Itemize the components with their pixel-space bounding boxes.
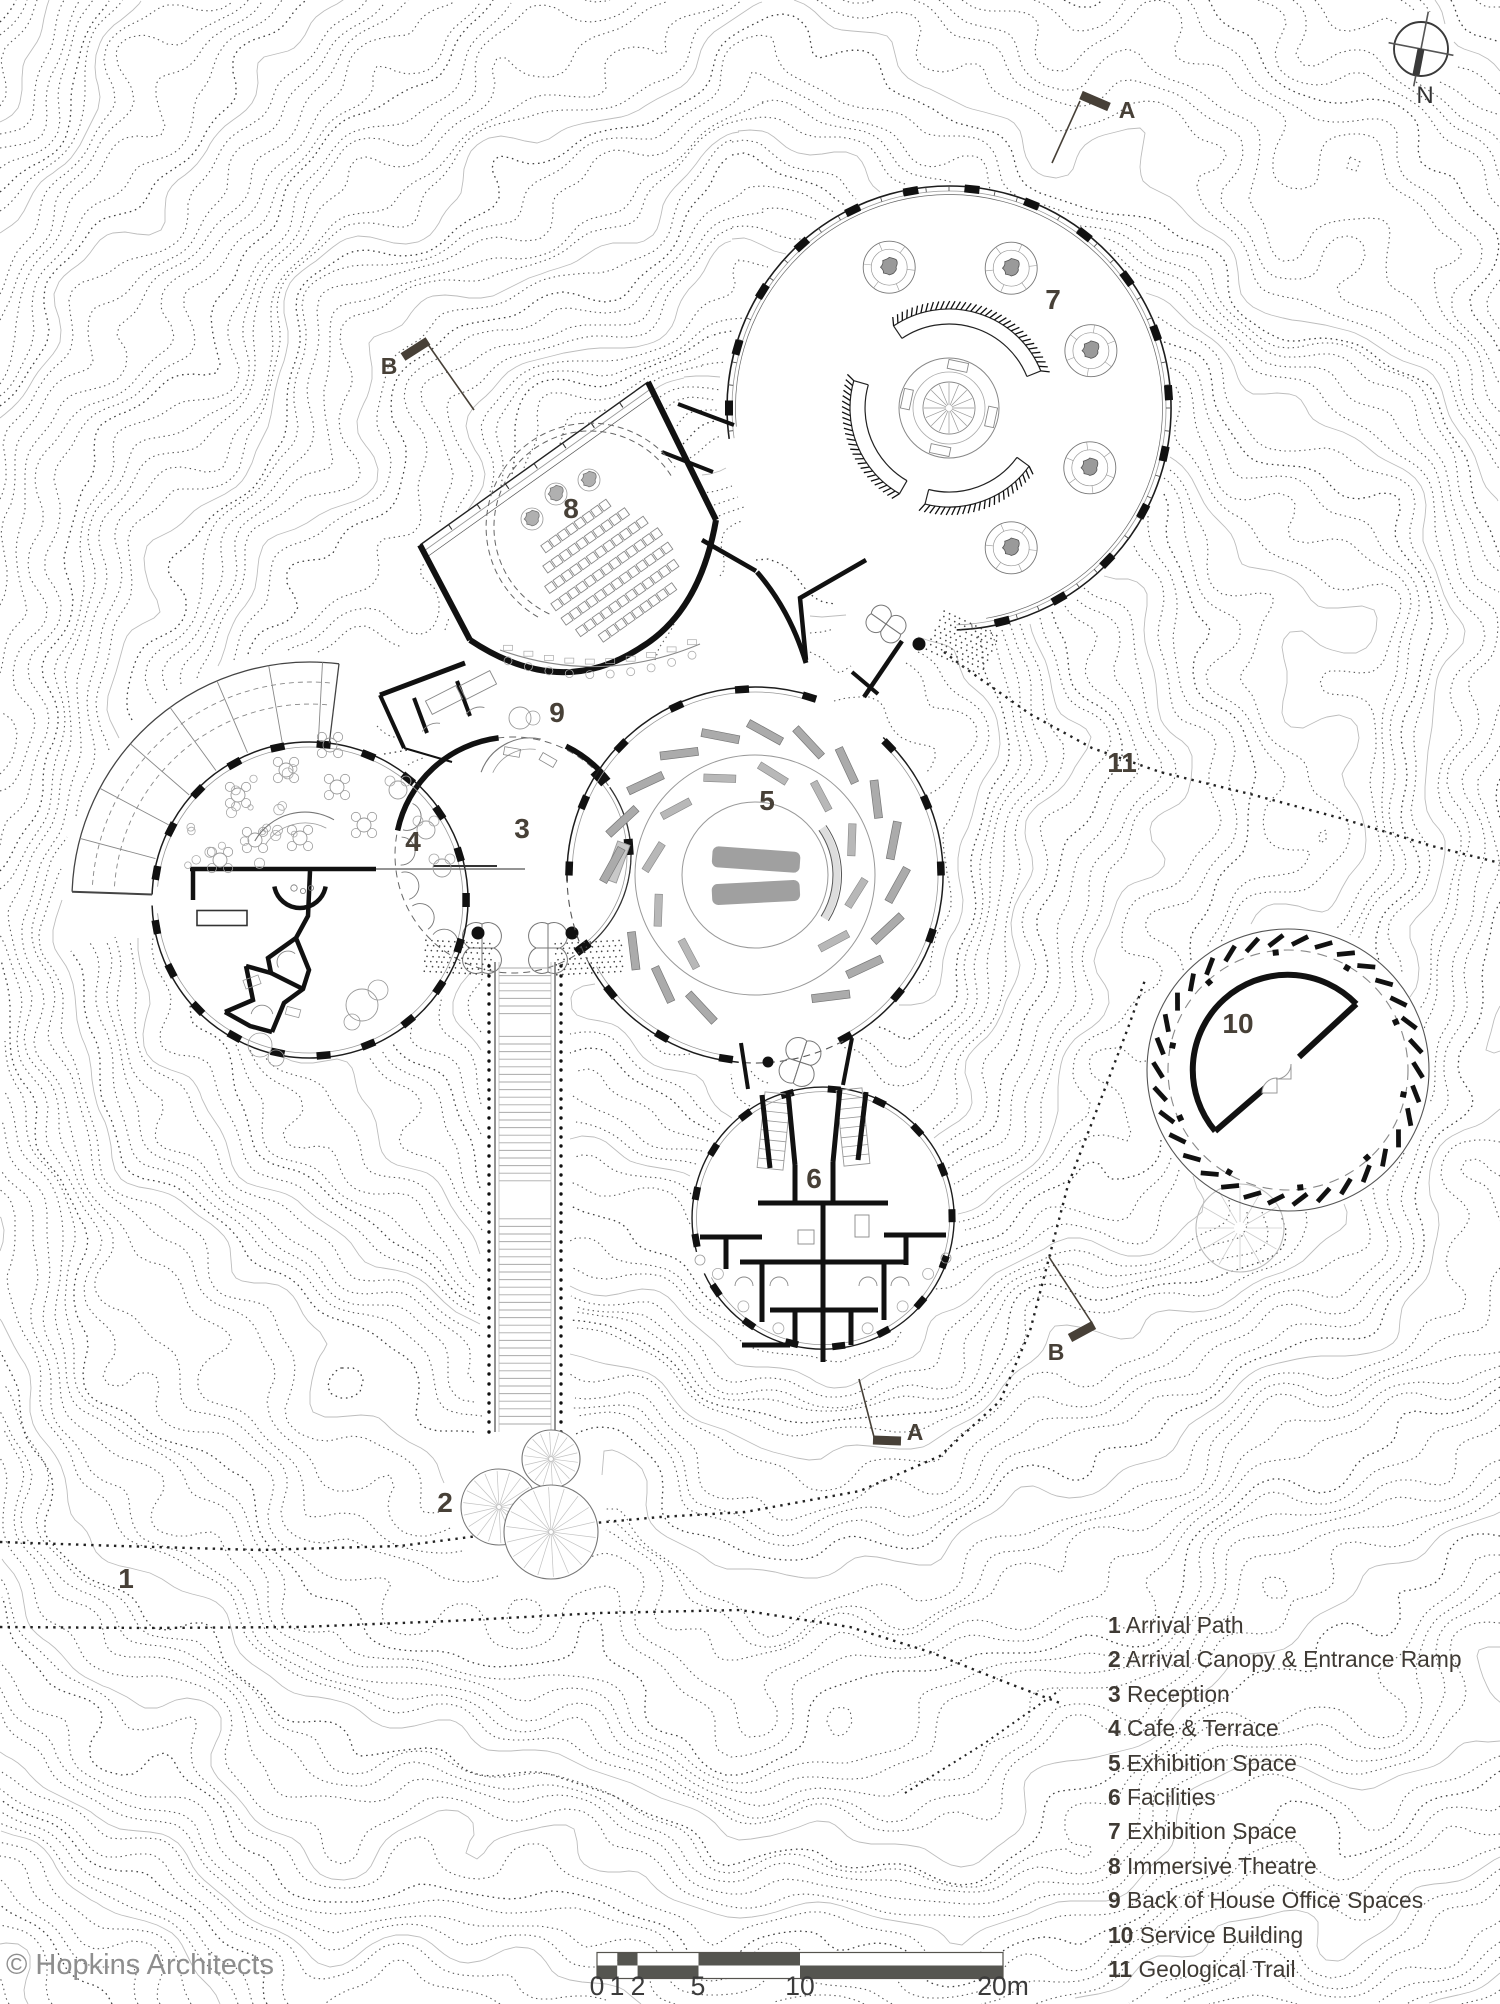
svg-text:N: N: [1416, 82, 1433, 109]
svg-text:10 Service Building: 10 Service Building: [1108, 1922, 1303, 1948]
svg-text:3 Reception: 3 Reception: [1108, 1681, 1230, 1707]
svg-text:2: 2: [437, 1487, 453, 1518]
svg-text:1 Arrival Path: 1 Arrival Path: [1108, 1612, 1244, 1638]
svg-text:B: B: [381, 353, 398, 379]
svg-text:11: 11: [1107, 747, 1137, 778]
svg-text:© Hopkins Architects: © Hopkins Architects: [6, 1949, 274, 1981]
svg-text:5 Exhibition Space: 5 Exhibition Space: [1108, 1750, 1297, 1776]
svg-text:7 Exhibition Space: 7 Exhibition Space: [1108, 1818, 1297, 1844]
svg-text:1: 1: [118, 1563, 134, 1594]
svg-text:A: A: [907, 1419, 924, 1445]
svg-text:0: 0: [590, 1971, 605, 2001]
svg-text:20m: 20m: [977, 1971, 1029, 2001]
svg-text:2: 2: [631, 1971, 646, 2001]
svg-text:7: 7: [1045, 284, 1061, 315]
svg-text:B: B: [1048, 1339, 1065, 1365]
svg-text:10: 10: [785, 1971, 814, 2001]
svg-text:5: 5: [691, 1971, 706, 2001]
svg-text:8 Immersive Theatre: 8 Immersive Theatre: [1108, 1853, 1317, 1879]
svg-text:4: 4: [405, 826, 421, 857]
svg-text:6 Facilities: 6 Facilities: [1108, 1784, 1216, 1810]
svg-text:10: 10: [1222, 1008, 1253, 1039]
svg-text:3: 3: [514, 813, 530, 844]
svg-text:9: 9: [549, 697, 565, 728]
svg-text:8: 8: [563, 493, 579, 524]
svg-text:2 Arrival Canopy & Entrance Ra: 2 Arrival Canopy & Entrance Ramp: [1108, 1646, 1462, 1672]
svg-text:9 Back of House Office Spaces: 9 Back of House Office Spaces: [1108, 1887, 1423, 1913]
svg-text:6: 6: [806, 1163, 822, 1194]
svg-text:1: 1: [610, 1971, 625, 2001]
svg-text:A: A: [1119, 97, 1136, 123]
svg-text:11 Geological Trail: 11 Geological Trail: [1108, 1956, 1296, 1982]
svg-text:5: 5: [759, 785, 775, 816]
svg-text:4 Cafe & Terrace: 4 Cafe & Terrace: [1108, 1715, 1279, 1741]
